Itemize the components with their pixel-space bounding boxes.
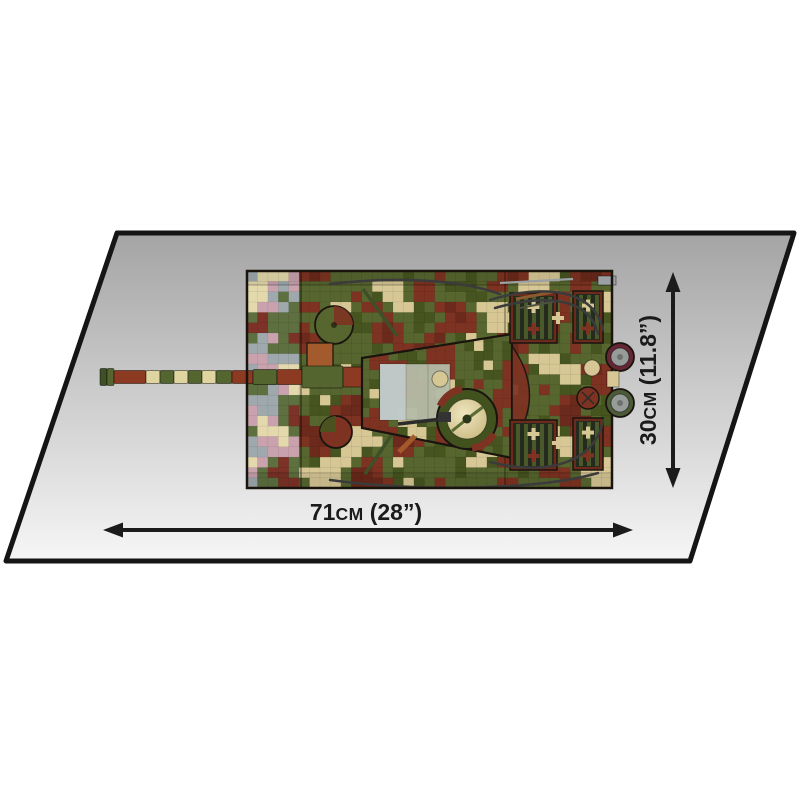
dimension-diagram-canvas: 71cm(28”) 30cm(11.8”): [0, 0, 800, 800]
product-dimension-image: 71cm(28”) 30cm(11.8”): [0, 0, 800, 800]
height-label: 30cm(11.8”): [635, 315, 661, 445]
